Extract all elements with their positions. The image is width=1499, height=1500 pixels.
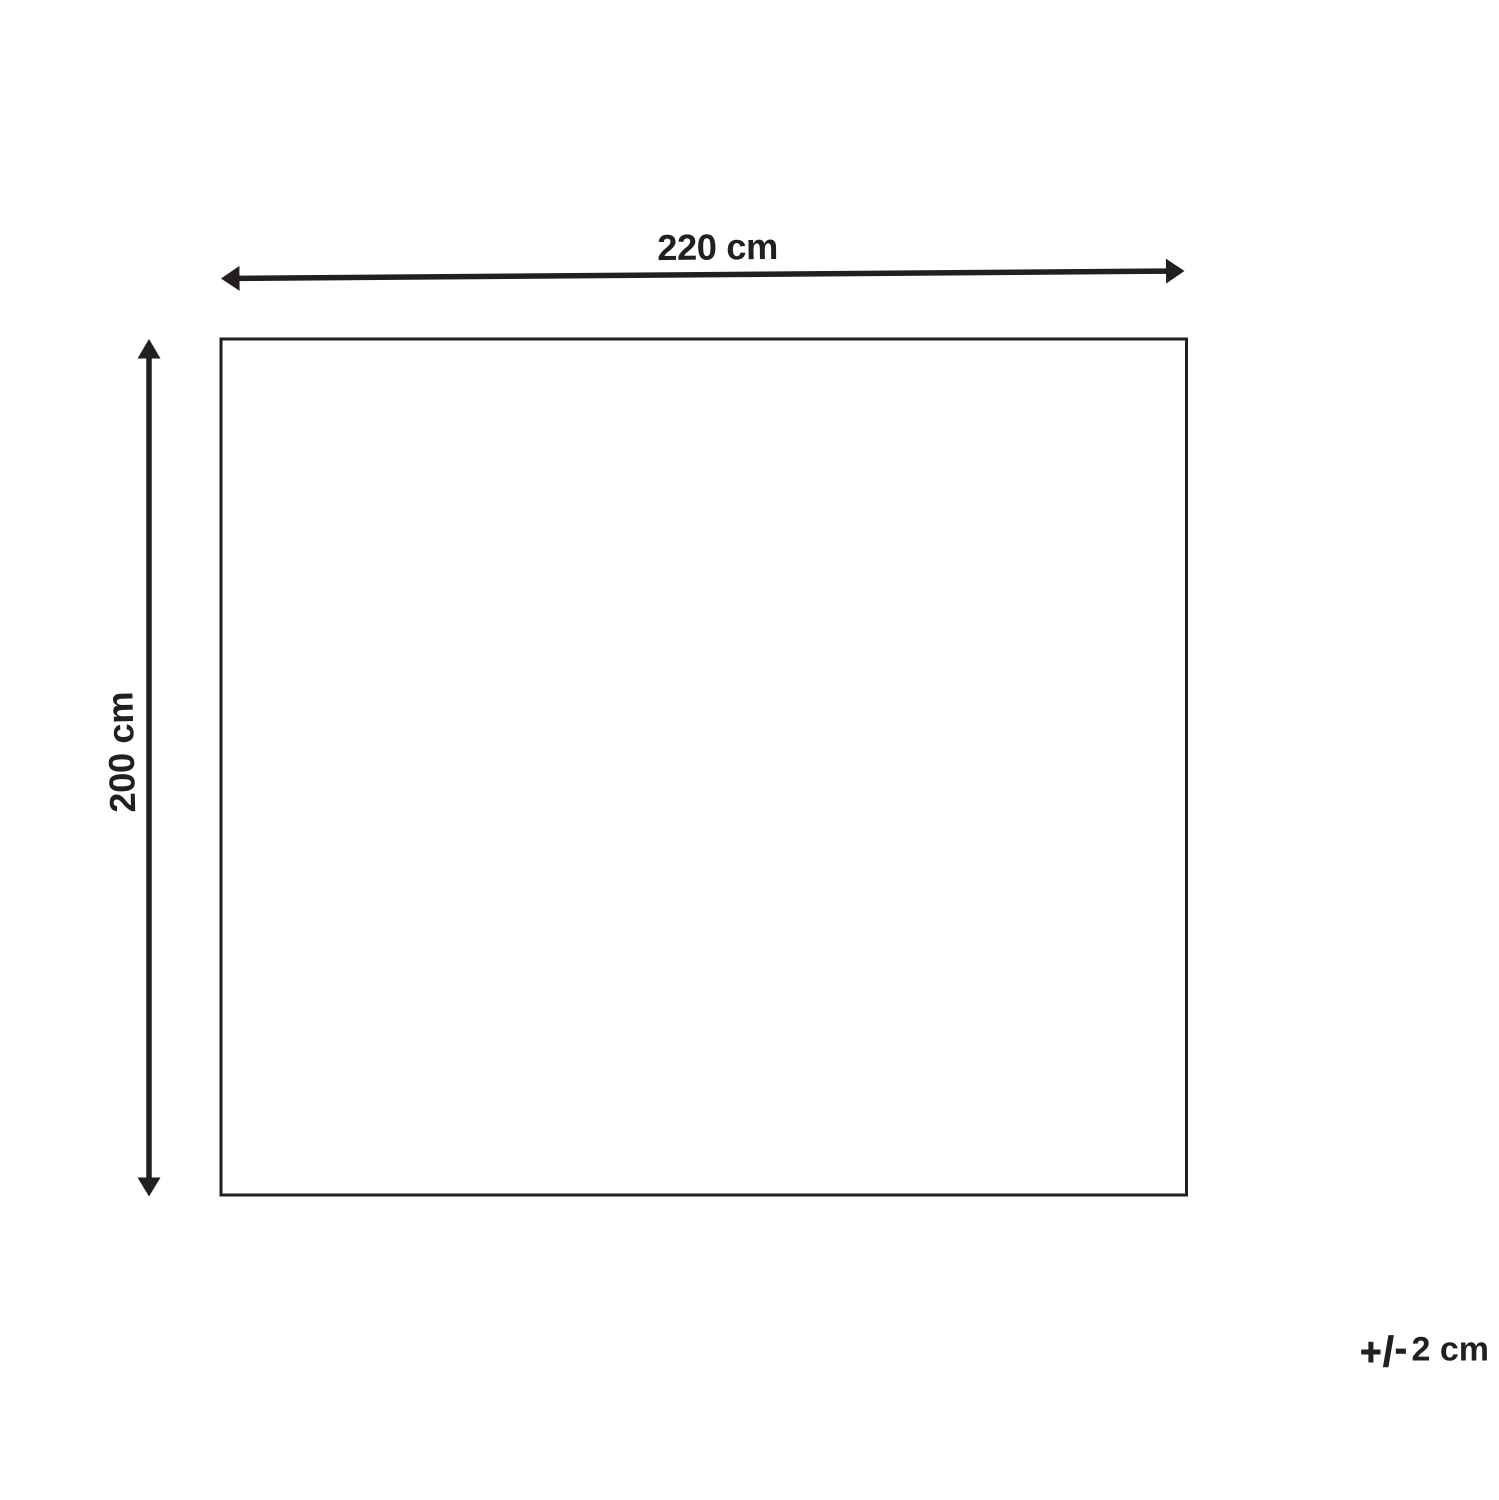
svg-text:200 cm: 200 cm — [99, 691, 143, 813]
svg-text:220 cm: 220 cm — [657, 226, 778, 268]
svg-text:2 cm: 2 cm — [1412, 1331, 1490, 1369]
